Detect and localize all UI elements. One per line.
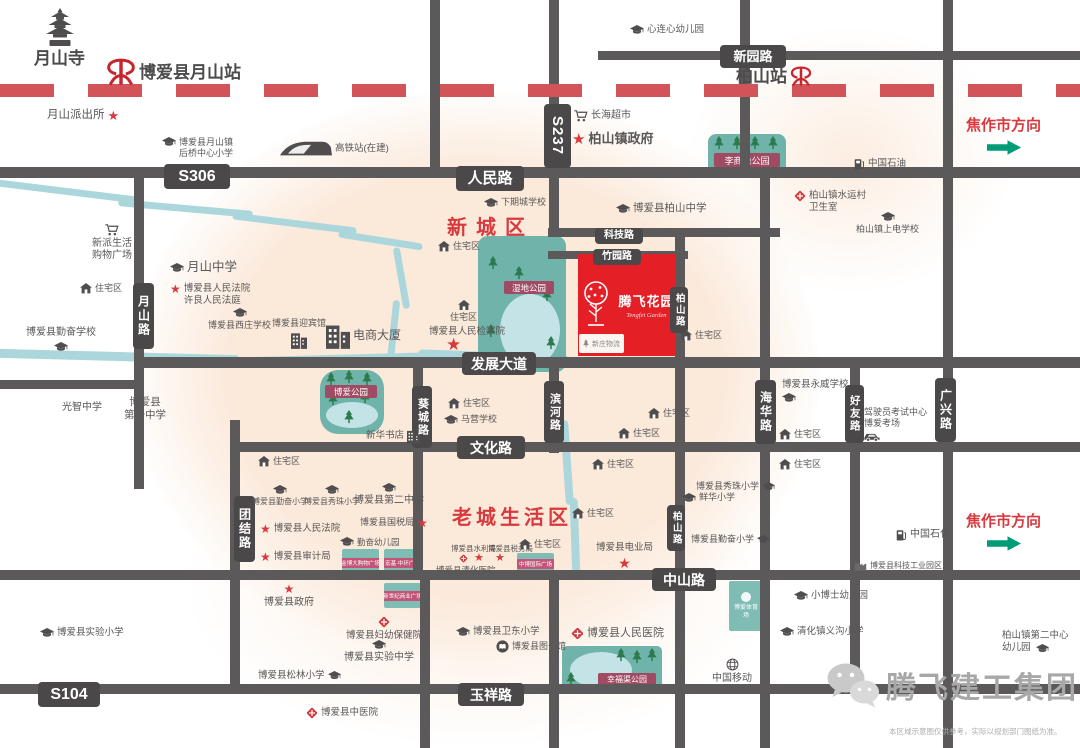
poi-text: 鲜华小学 bbox=[699, 492, 735, 503]
poi-text: 柏山站 bbox=[736, 66, 787, 87]
poi-text: 博爱县卫东小学 bbox=[473, 626, 540, 638]
star-icon: ★ bbox=[446, 336, 461, 353]
school-icon bbox=[40, 628, 54, 638]
poi-text: 柏山镇上电学校 bbox=[856, 224, 919, 235]
star-icon: ★ bbox=[170, 283, 181, 295]
area-label-new-town: 新城区 bbox=[447, 211, 534, 240]
poi-text: 博爱县国税局 bbox=[360, 517, 414, 528]
star-icon: ★ bbox=[417, 517, 428, 529]
poi-bld: 电商大厦 bbox=[326, 322, 401, 349]
poi-text: 住宅区 bbox=[794, 429, 821, 440]
factory-icon bbox=[854, 560, 867, 571]
pine-tree-icon bbox=[362, 372, 372, 386]
school-icon bbox=[170, 263, 184, 273]
river-segment bbox=[338, 230, 423, 250]
road-label: 人民路 bbox=[456, 166, 524, 191]
road-segment bbox=[549, 578, 559, 748]
school-icon bbox=[881, 212, 895, 222]
poi-text: 月山中学 bbox=[187, 260, 237, 276]
road-label: 玉祥路 bbox=[458, 683, 524, 706]
poi-school: 博爱县月山镇 后桥中心小学 bbox=[162, 137, 233, 160]
poi-text: 博爱县人民法院 bbox=[274, 523, 341, 535]
poi-house: 住宅区 bbox=[450, 300, 477, 324]
rail-icon bbox=[790, 66, 812, 88]
school-icon bbox=[444, 415, 458, 425]
project-name-en: Tengfei Garden bbox=[618, 312, 674, 319]
road-label: 月山路 bbox=[133, 283, 154, 349]
poi-gas: 中国石油 bbox=[854, 158, 906, 170]
rail-icon bbox=[106, 58, 136, 88]
poi-text: 下期城学校 bbox=[501, 197, 546, 208]
poi-school: 博爱县勤奋小学 bbox=[691, 534, 770, 545]
plaza-label: 新世纪商业广场 bbox=[384, 591, 421, 601]
poi-bld: 博爱县迎宾馆 bbox=[272, 318, 326, 349]
road-label: 发展大道 bbox=[462, 352, 536, 375]
poi-star: ★ bbox=[495, 553, 505, 564]
poi-school: 博爱县松林小学 bbox=[258, 670, 341, 682]
school-icon bbox=[162, 137, 176, 147]
school-icon bbox=[782, 393, 796, 403]
poi-school: 博爱县秀珠小学 bbox=[304, 485, 360, 507]
location-map: 腾飞花园 Tengfei Garden 新庄物流 新城区 老城生活区 焦作市方向… bbox=[0, 0, 1080, 748]
pine-tree-icon bbox=[647, 648, 657, 662]
poi-text: 博爱县勤奋小学 bbox=[691, 534, 754, 545]
poi-star: ★博爱县人民法院 bbox=[260, 523, 340, 535]
poi-text: 驾驶员考试中心 博爱考场 bbox=[864, 407, 927, 430]
star-icon: ★ bbox=[474, 553, 484, 564]
road-label: 海华路 bbox=[755, 380, 776, 444]
poi-text: 博爱县迎宾馆 bbox=[272, 318, 326, 329]
star-icon: ★ bbox=[618, 556, 631, 570]
pine-tree-icon bbox=[326, 372, 336, 386]
poi-star: ★柏山镇政府 bbox=[572, 131, 653, 147]
poi-text: 博爱县清化医院 bbox=[436, 565, 496, 576]
school-icon bbox=[630, 25, 644, 35]
poi-text: 中国石油 bbox=[868, 158, 906, 170]
poi-label: 光智中学 bbox=[62, 402, 102, 415]
poi-school: 博爱县实验小学 bbox=[40, 627, 124, 639]
star-icon: ★ bbox=[284, 583, 295, 595]
poi-house: 住宅区 bbox=[80, 283, 122, 294]
wechat-icon bbox=[826, 662, 880, 708]
road-label: S237 bbox=[544, 104, 571, 168]
poi-text: 电商大厦 bbox=[353, 328, 401, 343]
gas-icon bbox=[854, 158, 865, 170]
poi-bld: 新华书店 bbox=[366, 429, 420, 444]
plaza: 新世纪商业广场 bbox=[384, 583, 421, 608]
road-label: 竹园路 bbox=[593, 249, 641, 265]
road-segment bbox=[140, 357, 1080, 368]
park: 博爱公园 bbox=[320, 370, 384, 434]
poi-house: 住宅区 bbox=[618, 428, 660, 439]
logistics-annex: 新庄物流 bbox=[579, 334, 624, 353]
poi-school: 鲜华小学 bbox=[682, 492, 735, 503]
poi-text: 住宅区 bbox=[95, 283, 122, 294]
poi-text: 博爱县秀珠小学 bbox=[696, 481, 759, 492]
poi-star: 月山派出所★ bbox=[47, 108, 119, 122]
school-icon bbox=[340, 537, 354, 547]
poi-hosp: 博爱县妇幼保健院 bbox=[346, 616, 422, 642]
house-icon bbox=[258, 456, 270, 466]
poi-text: 博爱县图书馆 bbox=[512, 641, 566, 652]
pine-tree-icon bbox=[714, 136, 724, 150]
poi-school: 清化镇义沟小学 bbox=[780, 626, 864, 638]
poi-text: 住宅区 bbox=[273, 456, 300, 467]
school-icon bbox=[780, 627, 794, 637]
poi-hosp: 博爱县中医院 bbox=[306, 707, 378, 719]
road-segment bbox=[420, 578, 430, 748]
poi-cart: 新派生活 购物广场 bbox=[92, 224, 132, 263]
pine-tree-icon bbox=[344, 370, 354, 384]
poi-star: ★博爱县政府 bbox=[264, 583, 314, 610]
plaza-label: 博爱体育场 bbox=[733, 604, 759, 621]
poi-rail: 柏山站 bbox=[736, 66, 812, 88]
road-label: 柏山路 bbox=[667, 505, 685, 551]
poi-book: 博爱县图书馆 bbox=[496, 640, 566, 653]
poi-text: 博爱县月山镇 后桥中心小学 bbox=[179, 137, 233, 160]
pagoda-icon bbox=[45, 8, 75, 46]
train-icon bbox=[280, 140, 332, 157]
park-label: 博爱公园 bbox=[325, 385, 377, 398]
direction-jiaozuo-north: 焦作市方向 bbox=[966, 114, 1041, 155]
pine-tree-icon bbox=[344, 410, 354, 424]
house-icon bbox=[448, 398, 460, 408]
road-label: 科技路 bbox=[595, 228, 643, 244]
road-segment bbox=[0, 167, 1080, 178]
poi-text: 勤奋幼儿园 bbox=[357, 537, 400, 548]
bld-icon bbox=[291, 331, 307, 349]
poi-text: 博爱县电业局 bbox=[596, 542, 653, 554]
poi-school: 勤奋幼儿园 bbox=[340, 537, 400, 548]
pine-tree-icon bbox=[488, 256, 498, 270]
house-icon bbox=[618, 428, 630, 438]
poi-school: 小博士幼儿园 bbox=[794, 590, 868, 602]
poi-school: 博爱县实验中学 bbox=[344, 640, 414, 664]
poi-text: 博爱县柏山中学 bbox=[633, 202, 707, 215]
school-icon bbox=[484, 198, 498, 208]
school-icon bbox=[616, 204, 630, 214]
house-icon bbox=[458, 300, 470, 310]
poi-text: 住宅区 bbox=[450, 312, 477, 323]
poi-text: 柏山镇政府 bbox=[588, 131, 653, 147]
pine-tree-icon bbox=[632, 650, 642, 664]
poi-text: 住宅区 bbox=[453, 241, 480, 252]
cart-icon bbox=[105, 224, 119, 236]
pine-tree-icon bbox=[546, 336, 556, 350]
gas-icon bbox=[896, 529, 907, 541]
car-icon bbox=[864, 432, 880, 442]
house-icon bbox=[680, 330, 692, 340]
poi-text: 住宅区 bbox=[607, 459, 634, 470]
poi-text: 住宅区 bbox=[695, 330, 722, 341]
poi-text: 柏山镇水运村 卫生室 bbox=[809, 190, 866, 214]
poi-house: 住宅区 bbox=[448, 398, 490, 409]
star-icon: ★ bbox=[108, 109, 120, 122]
school-icon bbox=[456, 627, 470, 637]
poi-gas: 中国石化 bbox=[896, 529, 950, 542]
poi-house: 住宅区 bbox=[519, 539, 561, 550]
star-icon: ★ bbox=[260, 551, 271, 563]
pine-tree-icon bbox=[514, 266, 524, 280]
poi-label: 博爱县清化医院 bbox=[436, 565, 496, 576]
house-icon bbox=[592, 459, 604, 469]
poi-text: 月山寺 bbox=[34, 48, 85, 69]
poi-text: 马营学校 bbox=[461, 414, 497, 425]
poi-text: 博爱县秀珠小学 bbox=[304, 497, 360, 507]
road-segment bbox=[943, 0, 953, 748]
poi-text: 高铁站(在建) bbox=[335, 143, 389, 155]
poi-factory: 博爱县科技工业园区 bbox=[854, 560, 942, 571]
poi-star: 博爱县国税局★ bbox=[360, 517, 428, 529]
road-segment bbox=[760, 167, 770, 748]
poi-text: 心连心幼儿园 bbox=[647, 24, 704, 36]
house-icon bbox=[779, 429, 791, 439]
poi-star: ★博爱县人民法院 许良人民法庭 bbox=[170, 283, 250, 307]
house-icon bbox=[438, 241, 450, 251]
poi-pagoda: 月山寺 bbox=[34, 8, 85, 69]
poi-school: 月山中学 bbox=[170, 260, 237, 276]
star-icon: ★ bbox=[260, 523, 271, 535]
poi-text: 博爱县西庄学校 bbox=[208, 320, 271, 331]
cart-icon bbox=[574, 110, 588, 122]
poi-train: 高铁站(在建) bbox=[280, 140, 389, 157]
poi-hosp: 柏山镇水运村 卫生室 bbox=[794, 190, 866, 214]
road-label: 柏山路 bbox=[670, 287, 688, 333]
hosp-icon bbox=[459, 554, 468, 563]
house-icon bbox=[572, 508, 584, 518]
poi-text: 住宅区 bbox=[663, 408, 690, 419]
road-label: 滨河路 bbox=[544, 381, 564, 443]
poi-text: 博爱县第二中学 bbox=[354, 495, 424, 508]
poi-text: 博爱县松林小学 bbox=[258, 670, 325, 682]
poi-label: 博爱县 第一中学 bbox=[124, 396, 166, 422]
school-icon bbox=[325, 485, 339, 495]
annex-label: 新庄物流 bbox=[592, 339, 620, 349]
road-segment bbox=[598, 51, 1080, 60]
poi-car: 驾驶员考试中心 博爱考场 bbox=[864, 407, 927, 441]
poi-house: 住宅区 bbox=[648, 408, 690, 419]
star-icon: ★ bbox=[495, 553, 505, 564]
road-segment bbox=[0, 380, 140, 389]
stadium-dot-icon bbox=[741, 592, 751, 602]
arrow-right-icon bbox=[987, 140, 1021, 155]
poi-school: 博爱县卫东小学 bbox=[456, 626, 540, 638]
area-label-old-town: 老城生活区 bbox=[452, 501, 572, 530]
plaza: 博爱体育场 bbox=[729, 581, 763, 631]
poi-school: 博爱县勤奋小学 bbox=[252, 485, 308, 507]
poi-text: 住宅区 bbox=[587, 508, 614, 519]
book-icon bbox=[496, 640, 509, 653]
road-segment bbox=[0, 570, 1080, 580]
poi-school: 柏山镇上电学校 bbox=[856, 212, 919, 235]
poi-text: 博爱县人民检察院 bbox=[429, 326, 505, 338]
poi-text: 博爱县永威学校 bbox=[782, 379, 849, 391]
developer-watermark: 腾飞建工集团 bbox=[826, 662, 1078, 708]
poi-globe: 中国移动 bbox=[712, 658, 752, 686]
bld-icon bbox=[326, 322, 350, 349]
house-icon bbox=[80, 283, 92, 293]
poi-school: 博爱县勤奋学校 bbox=[26, 327, 96, 351]
direction-jiaozuo-south: 焦作市方向 bbox=[966, 510, 1041, 551]
pine-tree-icon bbox=[616, 648, 626, 662]
poi-star: ★ bbox=[474, 553, 484, 564]
disclaimer: 本区域示意图仅供参考，实际以规划部门图纸为准。 bbox=[889, 726, 1062, 737]
road-label: 广兴路 bbox=[935, 378, 956, 442]
poi-school bbox=[1036, 644, 1049, 653]
pine-tree-icon bbox=[768, 136, 778, 150]
poi-text: 博爱县实验中学 bbox=[344, 652, 414, 665]
poi-text: 博爱县勤奋学校 bbox=[26, 327, 96, 340]
poi-text: 博爱县审计局 bbox=[274, 551, 331, 563]
road-segment bbox=[548, 228, 780, 237]
plaza-label: 中博国际广场 bbox=[517, 559, 554, 569]
bld-icon bbox=[407, 429, 420, 444]
poi-house: 住宅区 bbox=[572, 508, 614, 519]
poi-text: 博爱县科技工业园区 bbox=[870, 561, 942, 571]
leaf-icon bbox=[583, 339, 589, 348]
poi-text: 光智中学 bbox=[62, 402, 102, 415]
poi-text: 小博士幼儿园 bbox=[811, 590, 868, 602]
poi-text: 博爱县实验小学 bbox=[57, 627, 124, 639]
school-icon bbox=[762, 482, 775, 491]
school-icon bbox=[1036, 644, 1049, 653]
poi-rail: 博爱县月山站 bbox=[106, 58, 241, 88]
poi-school: 博爱县柏山中学 bbox=[616, 202, 707, 215]
poi-text: 月山派出所 bbox=[47, 108, 105, 122]
poi-star: ★博爱县审计局 bbox=[260, 551, 331, 563]
poi-school: 下期城学校 bbox=[484, 197, 546, 208]
poi-text: 中国移动 bbox=[712, 673, 752, 686]
project-tree-logo-icon bbox=[579, 278, 613, 332]
arrow-right-icon bbox=[987, 536, 1021, 551]
school-icon bbox=[328, 671, 341, 680]
poi-text: 博爱县人民法院 许良人民法庭 bbox=[184, 283, 251, 307]
school-icon bbox=[757, 535, 770, 544]
hosp-icon bbox=[571, 627, 584, 640]
poi-house: 住宅区 bbox=[779, 429, 821, 440]
poi-school: 心连心幼儿园 bbox=[630, 24, 704, 36]
poi-text: 博爱县月山站 bbox=[139, 62, 241, 83]
poi-school: 马营学校 bbox=[444, 414, 497, 425]
house-icon bbox=[648, 408, 660, 418]
house-icon bbox=[779, 459, 791, 469]
poi-text: 住宅区 bbox=[633, 428, 660, 439]
poi-school: 博爱县西庄学校 bbox=[208, 308, 271, 331]
school-icon bbox=[273, 485, 287, 495]
poi-cart: 长海超市 bbox=[574, 110, 631, 123]
poi-school: 博爱县第二中学 bbox=[354, 483, 424, 507]
school-icon bbox=[794, 591, 808, 601]
poi-text: 住宅区 bbox=[463, 398, 490, 409]
poi-house: 住宅区 bbox=[779, 459, 821, 470]
poi-house: 住宅区 bbox=[438, 241, 480, 252]
school-icon bbox=[233, 308, 247, 318]
poi-text: 博爱县勤奋小学 bbox=[252, 497, 308, 507]
park-label: 湿地公园 bbox=[504, 281, 554, 294]
school-icon bbox=[382, 483, 396, 493]
poi-text: 住宅区 bbox=[794, 459, 821, 470]
watermark-text: 腾飞建工集团 bbox=[886, 663, 1078, 707]
road-label: 中山路 bbox=[652, 568, 716, 591]
poi-house: 住宅区 bbox=[680, 330, 722, 341]
school-icon bbox=[372, 640, 386, 650]
poi-text: 博爱县中医院 bbox=[321, 707, 378, 719]
poi-text: 博爱县人民医院 bbox=[587, 627, 664, 641]
school-icon bbox=[682, 493, 696, 503]
poi-text: 中国石化 bbox=[910, 529, 950, 542]
road-label: 文化路 bbox=[457, 436, 525, 459]
poi-text: 住宅区 bbox=[534, 539, 561, 550]
poi-text: 长海超市 bbox=[591, 110, 631, 123]
star-icon: ★ bbox=[572, 132, 585, 147]
house-icon bbox=[519, 539, 531, 549]
poi-house: 住宅区 bbox=[258, 456, 300, 467]
poi-text: 清化镇义沟小学 bbox=[797, 626, 864, 638]
project-name: 腾飞花园 bbox=[618, 291, 674, 310]
poi-hosp: 博爱县人民医院 bbox=[571, 627, 664, 641]
poi-hosp bbox=[459, 554, 468, 563]
hosp-icon bbox=[378, 616, 390, 628]
poi-star: ★ bbox=[446, 336, 461, 353]
poi-text: 新派生活 购物广场 bbox=[92, 238, 132, 263]
globe-icon bbox=[726, 658, 739, 671]
poi-text: 博爱县 第一中学 bbox=[124, 396, 166, 422]
direction-label: 焦作市方向 bbox=[966, 117, 1041, 134]
pine-tree-icon bbox=[750, 136, 760, 150]
hosp-icon bbox=[306, 707, 318, 719]
plaza-label: 金博大购物广场 bbox=[342, 558, 379, 568]
poi-house: 住宅区 bbox=[592, 459, 634, 470]
poi-school: 博爱县秀珠小学 bbox=[696, 481, 775, 492]
poi-text: 新华书店 bbox=[366, 430, 404, 442]
poi-label: 博爱县人民检察院 bbox=[429, 326, 505, 338]
road-label: S104 bbox=[38, 682, 100, 707]
poi-star: 博爱县电业局★ bbox=[596, 542, 653, 570]
road-label: S306 bbox=[164, 164, 230, 189]
poi-text: 博爱县政府 bbox=[264, 597, 314, 610]
road-label: 新园路 bbox=[720, 45, 786, 68]
direction-label: 焦作市方向 bbox=[966, 513, 1041, 530]
school-icon bbox=[54, 342, 68, 352]
hosp-icon bbox=[794, 190, 806, 202]
poi-school: 博爱县永威学校 bbox=[782, 379, 849, 403]
